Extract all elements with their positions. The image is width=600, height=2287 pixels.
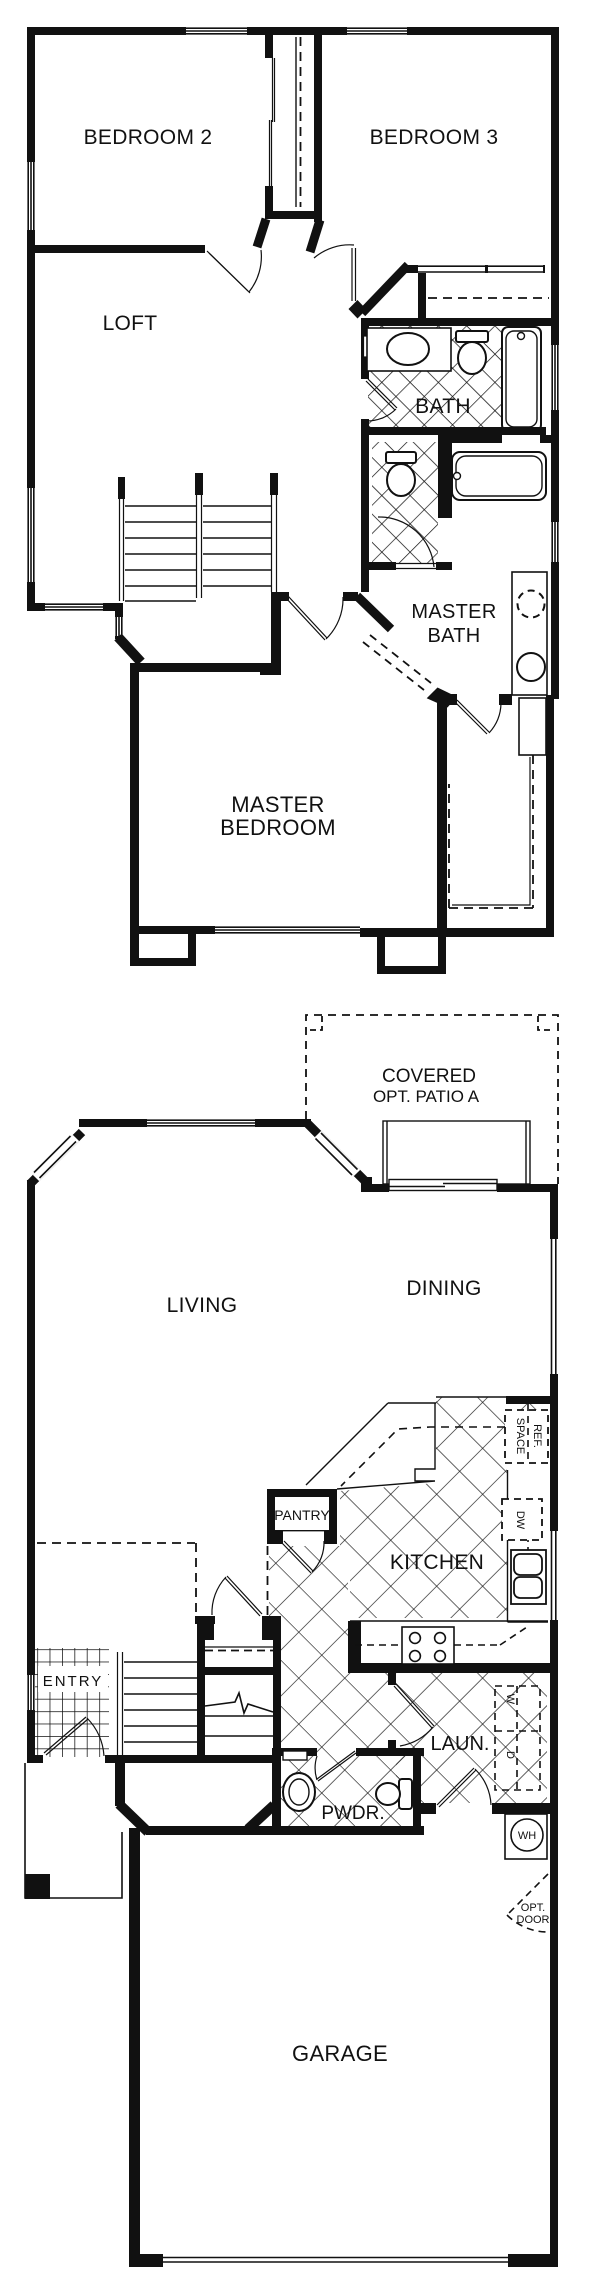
svg-text:SPACE: SPACE	[514, 1418, 526, 1454]
svg-text:MASTER: MASTER	[231, 792, 324, 817]
svg-text:BEDROOM 2: BEDROOM 2	[84, 126, 213, 149]
svg-text:DINING: DINING	[406, 1277, 481, 1300]
svg-text:DW: DW	[514, 1511, 526, 1530]
svg-text:LAUN.: LAUN.	[431, 1733, 490, 1755]
svg-text:LIVING: LIVING	[167, 1294, 238, 1317]
svg-text:PWDR.: PWDR.	[321, 1803, 384, 1824]
svg-text:WH: WH	[518, 1830, 536, 1842]
svg-text:OPT. PATIO A: OPT. PATIO A	[373, 1087, 480, 1106]
svg-text:D: D	[504, 1751, 516, 1759]
svg-text:BEDROOM: BEDROOM	[220, 815, 336, 840]
svg-text:BEDROOM 3: BEDROOM 3	[370, 126, 499, 149]
svg-text:REF.: REF.	[531, 1424, 543, 1448]
svg-text:W: W	[504, 1694, 516, 1705]
svg-text:OPT.: OPT.	[521, 1902, 545, 1914]
svg-text:MASTER: MASTER	[411, 601, 496, 623]
svg-text:GARAGE: GARAGE	[292, 2041, 388, 2066]
svg-text:COVERED: COVERED	[382, 1066, 476, 1087]
svg-text:PANTRY: PANTRY	[274, 1507, 330, 1523]
svg-text:BATH: BATH	[427, 625, 480, 647]
svg-text:BATH: BATH	[415, 395, 471, 418]
svg-text:KITCHEN: KITCHEN	[390, 1551, 484, 1574]
svg-text:DOOR: DOOR	[517, 1914, 550, 1926]
svg-text:ENTRY: ENTRY	[43, 1673, 104, 1690]
svg-text:LOFT: LOFT	[103, 312, 158, 335]
